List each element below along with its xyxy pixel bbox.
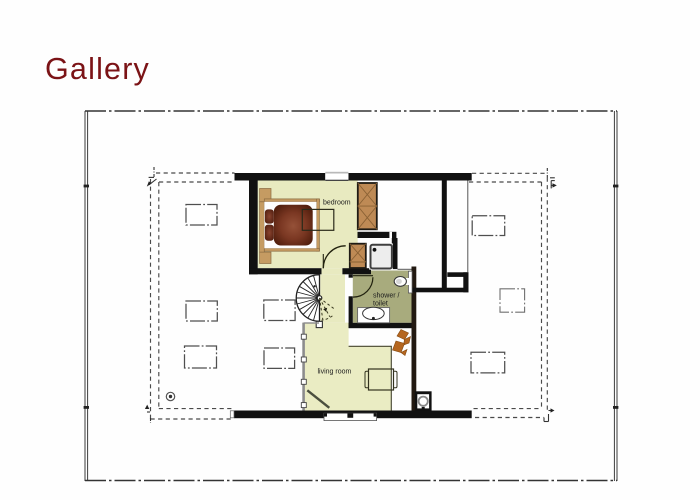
svg-text:bedroom: bedroom [323,200,351,207]
svg-text:toilet: toilet [373,301,388,308]
svg-text:living room: living room [318,368,352,375]
svg-text:Gallery: Gallery [45,52,150,86]
svg-text:shower /: shower / [373,293,400,300]
